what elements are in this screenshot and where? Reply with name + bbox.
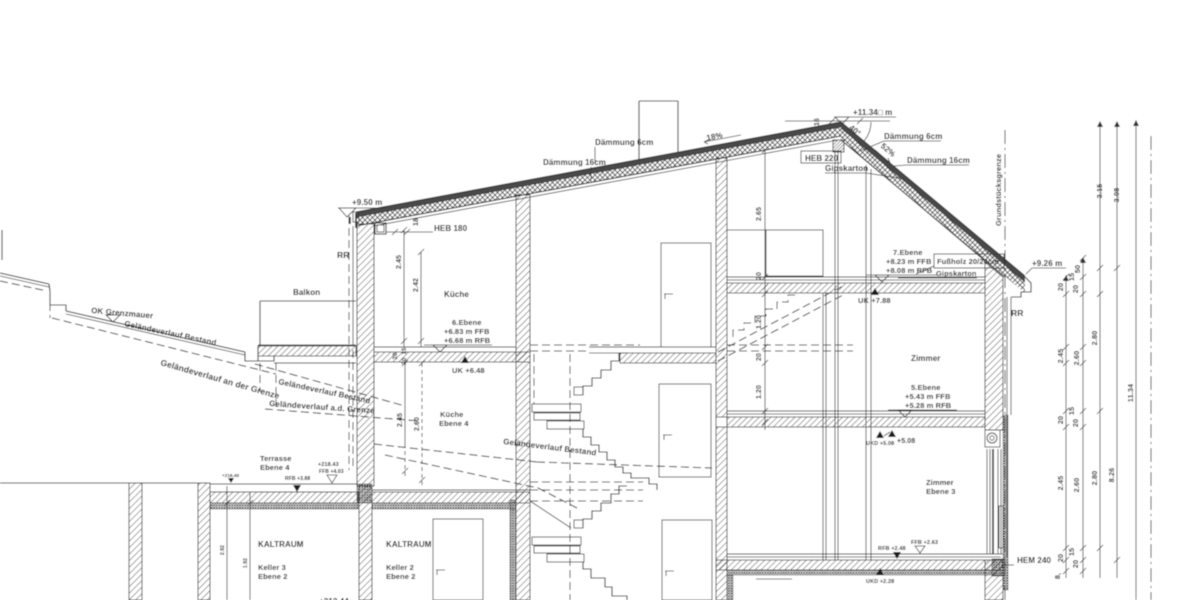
svg-text:+5.43 m FFB: +5.43 m FFB [905, 392, 951, 401]
svg-text:Zimmer: Zimmer [911, 354, 941, 363]
svg-text:+8.08 m RFB: +8.08 m RFB [886, 266, 933, 275]
svg-text:6.Ebene: 6.Ebene [452, 318, 481, 327]
svg-text:2.60: 2.60 [1072, 478, 1081, 493]
svg-text:20: 20 [1056, 416, 1065, 424]
svg-text:20: 20 [1056, 283, 1065, 291]
svg-text:+216.40: +216.40 [222, 473, 239, 478]
svg-text:UK +7.88: UK +7.88 [858, 296, 891, 305]
svg-text:Grundstücksgrenze: Grundstücksgrenze [994, 154, 1003, 226]
svg-text:2.45: 2.45 [397, 413, 404, 427]
svg-text:50: 50 [1073, 265, 1082, 273]
svg-text:2.80: 2.80 [1090, 331, 1099, 346]
svg-text:16: 16 [814, 118, 821, 126]
svg-text:Ebene 4: Ebene 4 [439, 419, 469, 428]
svg-text:8.26: 8.26 [1107, 468, 1116, 483]
svg-text:1.92: 1.92 [243, 558, 249, 568]
svg-text:RR: RR [1011, 308, 1023, 318]
svg-text:15: 15 [1067, 407, 1076, 415]
svg-text:20: 20 [1071, 285, 1080, 293]
svg-text:3.15: 3.15 [1095, 184, 1104, 199]
svg-text:15: 15 [402, 347, 408, 354]
svg-text:Fußholz 20/20cm: Fußholz 20/20cm [937, 257, 999, 266]
svg-text:Ebene 2: Ebene 2 [386, 572, 415, 581]
svg-text:+6.83 m FFB: +6.83 m FFB [444, 327, 490, 336]
svg-text:2.42: 2.42 [413, 278, 420, 292]
svg-text:20: 20 [402, 357, 408, 364]
svg-text:Dämmung 6cm: Dämmung 6cm [595, 138, 653, 147]
svg-text:2.45: 2.45 [1056, 476, 1065, 491]
svg-text:2.65: 2.65 [756, 207, 763, 221]
svg-text:7.Ebene: 7.Ebene [893, 248, 922, 257]
svg-text:2.92: 2.92 [220, 545, 226, 555]
svg-text:Zimmer: Zimmer [926, 478, 954, 487]
svg-text:FFB +2.63: FFB +2.63 [911, 540, 938, 546]
svg-text:Ebene 3: Ebene 3 [926, 487, 955, 496]
svg-text:RFB +3.88: RFB +3.88 [285, 476, 310, 482]
svg-text:UK +6.48: UK +6.48 [452, 366, 485, 375]
svg-text:18: 18 [413, 218, 420, 226]
svg-text:HEB 180: HEB 180 [434, 224, 468, 233]
svg-text:Gipskarton: Gipskarton [825, 164, 868, 173]
svg-text:2.45: 2.45 [396, 255, 403, 269]
svg-text:11.34: 11.34 [1126, 383, 1135, 402]
svg-text:2.60: 2.60 [414, 417, 421, 431]
svg-text:+5.28 m RFB: +5.28 m RFB [905, 401, 952, 410]
svg-text:+5.08: +5.08 [897, 438, 915, 445]
svg-text:UKD +2.28: UKD +2.28 [866, 579, 894, 585]
svg-text:Gipskarton: Gipskarton [936, 269, 977, 278]
svg-text:Küche: Küche [444, 290, 469, 299]
svg-text:20: 20 [756, 272, 763, 280]
svg-text:HEM 240: HEM 240 [1017, 556, 1051, 565]
svg-text:2.45: 2.45 [1056, 349, 1065, 364]
svg-text:20: 20 [1056, 554, 1065, 562]
svg-text:Keller 2: Keller 2 [386, 563, 414, 572]
svg-text:Keller 3: Keller 3 [258, 563, 286, 572]
svg-text:20: 20 [756, 353, 763, 361]
svg-text:RFB +2.48: RFB +2.48 [878, 546, 906, 552]
svg-text:1.20: 1.20 [756, 385, 763, 399]
svg-text:+9.26 m: +9.26 m [1032, 259, 1062, 268]
svg-text:Ebene 4: Ebene 4 [260, 463, 290, 472]
svg-text:20: 20 [1071, 560, 1080, 568]
svg-text:20: 20 [1071, 419, 1080, 427]
svg-text:KALTRAUM: KALTRAUM [386, 540, 432, 549]
svg-text:+11.34□ m: +11.34□ m [853, 108, 892, 117]
svg-text:Dämmung 16cm: Dämmung 16cm [543, 158, 606, 167]
svg-text:20: 20 [393, 352, 399, 359]
svg-text:5.Ebene: 5.Ebene [911, 383, 940, 392]
svg-text:15: 15 [1067, 548, 1076, 556]
svg-text:8,: 8, [1053, 573, 1062, 579]
svg-text:Küche: Küche [440, 410, 463, 419]
svg-text:1.20: 1.20 [756, 315, 763, 329]
svg-text:Dämmung 6cm: Dämmung 6cm [884, 132, 942, 141]
svg-text:RR: RR [337, 250, 349, 260]
svg-text:Dämmung 16cm: Dämmung 16cm [907, 156, 970, 165]
svg-text:3.08: 3.08 [1112, 188, 1121, 203]
svg-text:FFB +4.03: FFB +4.03 [319, 469, 344, 475]
svg-text:Ebene 2: Ebene 2 [258, 572, 287, 581]
svg-text:KALTRAUM: KALTRAUM [258, 540, 304, 549]
svg-text:Terrasse: Terrasse [260, 454, 292, 463]
svg-text:+6.68 m RFB: +6.68 m RFB [444, 336, 491, 345]
svg-text:UKD +5.08: UKD +5.08 [866, 441, 894, 447]
svg-text:+9.50 m: +9.50 m [352, 198, 382, 207]
svg-text:+8.23 m FFB: +8.23 m FFB [886, 257, 932, 266]
svg-text:HEB 220: HEB 220 [805, 154, 839, 163]
svg-text:2.80: 2.80 [1090, 471, 1099, 486]
svg-text:+218.43: +218.43 [318, 462, 339, 468]
svg-text:Balkon: Balkon [293, 288, 320, 297]
svg-text:2.60: 2.60 [1072, 351, 1081, 366]
